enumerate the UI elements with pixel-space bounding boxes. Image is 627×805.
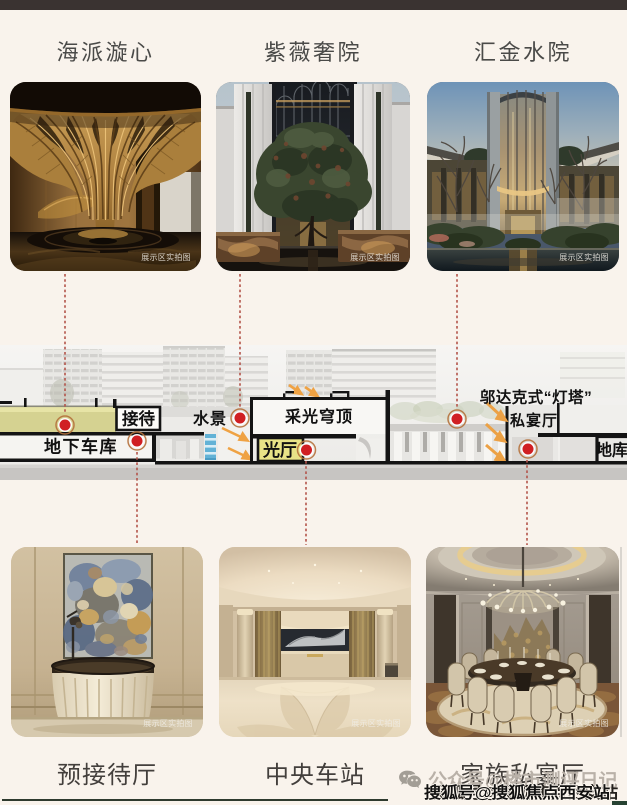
svg-text:私宴厅: 私宴厅 <box>509 412 558 430</box>
svg-text:水景: 水景 <box>193 409 227 428</box>
svg-text:接待: 接待 <box>122 409 156 429</box>
svg-text:地库: 地库 <box>596 441 627 460</box>
svg-text:采光穹顶: 采光穹顶 <box>284 407 353 426</box>
svg-text:邬达克式“灯塔”: 邬达克式“灯塔” <box>480 388 593 407</box>
svg-text:光厅: 光厅 <box>262 440 297 460</box>
svg-text:地下车库: 地下车库 <box>44 437 118 457</box>
